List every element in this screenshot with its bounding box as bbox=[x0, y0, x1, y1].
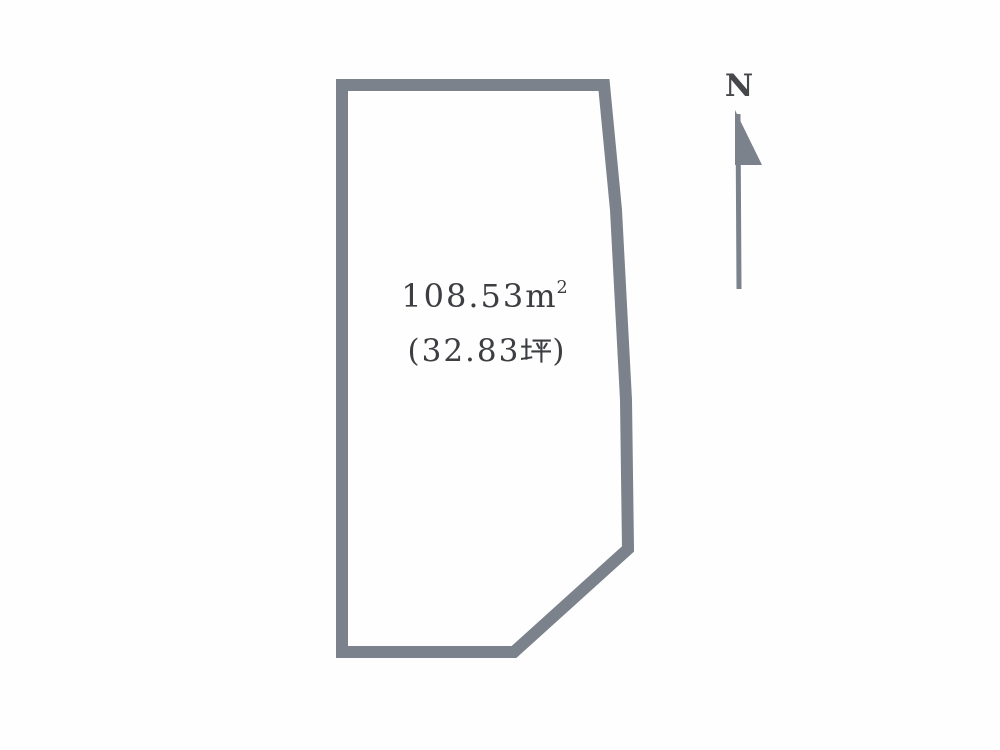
north-arrow-icon bbox=[735, 110, 762, 289]
tsubo-open-text: (32.83 bbox=[408, 333, 521, 369]
north-arrow-head bbox=[735, 110, 762, 165]
area-value: 108.53 bbox=[401, 277, 525, 315]
plot-drawing bbox=[0, 0, 1000, 750]
north-label: N bbox=[712, 68, 766, 104]
area-unit-exponent: 2 bbox=[557, 278, 568, 298]
area-label-tsubo: (32.83 ) bbox=[348, 333, 626, 369]
land-plot-diagram: 108.53m2 (32.83 ) N bbox=[0, 0, 1000, 750]
tsubo-kanji-glyph bbox=[521, 334, 551, 364]
area-unit-base: m bbox=[525, 277, 557, 315]
tsubo-close-text: ) bbox=[552, 333, 566, 369]
area-label-m2: 108.53m2 bbox=[350, 277, 620, 315]
